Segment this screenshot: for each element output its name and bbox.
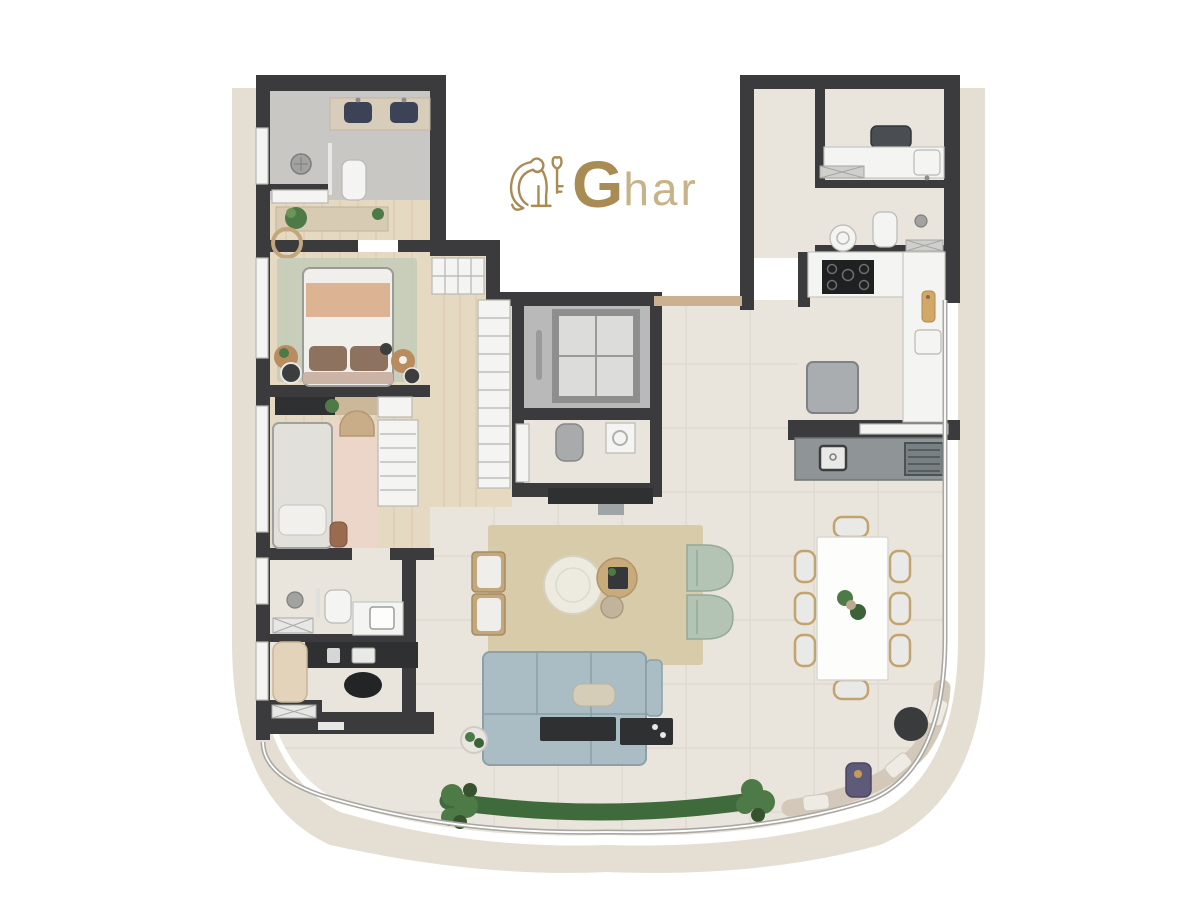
toilet	[342, 160, 366, 200]
desk-plant	[325, 399, 339, 413]
washing-machine	[871, 126, 911, 148]
dining-chair	[890, 593, 910, 624]
office-chaise	[273, 642, 307, 702]
grill	[905, 443, 943, 475]
cup	[660, 732, 666, 738]
dining-chair	[834, 680, 868, 699]
coffee-table-dark	[540, 717, 616, 741]
powder-door	[516, 424, 529, 482]
plant-leaf	[286, 208, 296, 218]
floorplan-graphic	[0, 0, 1200, 919]
vanity-sink	[390, 102, 418, 123]
window	[256, 128, 268, 184]
laptop	[352, 648, 375, 663]
ottoman-decor	[854, 770, 862, 778]
shower-glass	[316, 588, 320, 618]
office-chair	[344, 672, 382, 698]
window	[256, 558, 268, 604]
shower-head	[915, 215, 927, 227]
wall-cabinet	[860, 424, 948, 434]
logo-initial: G	[572, 149, 623, 219]
round-sink	[830, 225, 856, 251]
powder-sink	[606, 423, 635, 453]
pillow	[279, 505, 326, 535]
lion-key-logo-icon	[498, 149, 568, 219]
nightstand-tray	[281, 363, 301, 383]
side-table	[601, 596, 623, 618]
tv-console-shelf	[598, 504, 624, 515]
board-hole	[926, 295, 930, 299]
nightstand-plant	[279, 348, 289, 358]
window	[256, 258, 268, 358]
logo-rest: har	[623, 144, 698, 224]
dining-chair	[890, 635, 910, 666]
toilet	[325, 590, 351, 623]
vanity-sink	[344, 102, 372, 123]
sofa-chaise	[646, 660, 662, 716]
pillow	[309, 346, 347, 371]
bench-cushion	[802, 794, 829, 812]
window	[256, 642, 268, 700]
powder-toilet	[556, 424, 583, 461]
vanity-sink	[370, 607, 394, 629]
lounge-chair	[687, 545, 733, 591]
window	[256, 406, 268, 532]
laundry-sink	[914, 150, 940, 175]
room-master-bedroom	[274, 258, 420, 386]
elevator-rail	[536, 330, 542, 380]
purple-ottoman	[846, 763, 871, 797]
side-table-dark	[620, 718, 673, 745]
floorplan-canvas: Ghar	[0, 0, 1200, 919]
armchair-cushion	[477, 556, 501, 588]
round-dark-table	[894, 707, 928, 741]
bed-blanket	[306, 283, 390, 317]
round-pouf	[544, 556, 602, 614]
planter-leaf	[474, 738, 484, 748]
stool	[330, 522, 347, 547]
faucet	[356, 98, 361, 103]
nightstand-tray	[404, 368, 420, 384]
centerpiece-bowl	[846, 600, 856, 610]
dining-chair	[795, 635, 815, 666]
dining-chair	[795, 551, 815, 582]
bath-bench	[272, 190, 328, 203]
drawer-unit	[378, 397, 412, 417]
shower-head	[287, 592, 303, 608]
long-wardrobe	[478, 300, 510, 488]
headboard	[303, 372, 393, 384]
planter-leaf	[465, 732, 475, 742]
lounge-chair	[687, 595, 733, 639]
faucet	[925, 176, 930, 181]
wardrobe	[378, 420, 418, 506]
tray-plant	[608, 568, 616, 576]
refrigerator	[807, 362, 858, 413]
sectional-sofa	[483, 652, 646, 765]
dining-chair	[795, 593, 815, 624]
tablet	[327, 648, 340, 663]
cup	[652, 724, 658, 730]
small-plant	[372, 208, 384, 220]
decor	[380, 343, 392, 355]
brand-logo: Ghar	[498, 146, 699, 222]
entry-door	[654, 296, 742, 306]
service-corridor-floor	[754, 88, 815, 258]
tv-console	[548, 488, 653, 504]
shower-glass	[328, 143, 332, 195]
sofa-pillow	[573, 684, 615, 706]
kitchen-sink	[915, 330, 941, 354]
toilet	[873, 212, 897, 247]
dining-chair	[834, 517, 868, 537]
armchair-cushion	[477, 598, 501, 631]
bbq-sink	[820, 446, 846, 470]
bed-sheet	[306, 317, 390, 344]
dining-chair	[890, 551, 910, 582]
wall-niche	[318, 722, 344, 730]
decor	[399, 356, 407, 364]
faucet	[402, 98, 407, 103]
